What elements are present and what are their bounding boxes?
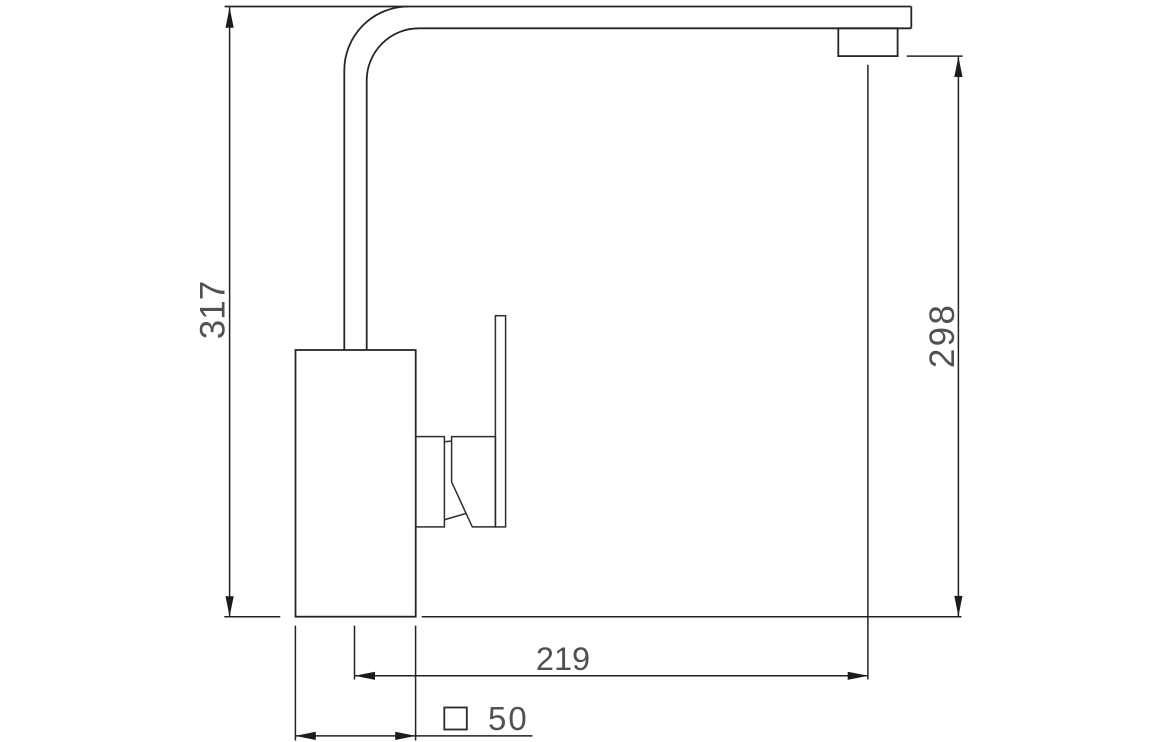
svg-text:298: 298 — [923, 303, 962, 368]
svg-text:219: 219 — [536, 641, 590, 677]
svg-text:317: 317 — [193, 281, 232, 339]
svg-text:50: 50 — [488, 700, 529, 737]
